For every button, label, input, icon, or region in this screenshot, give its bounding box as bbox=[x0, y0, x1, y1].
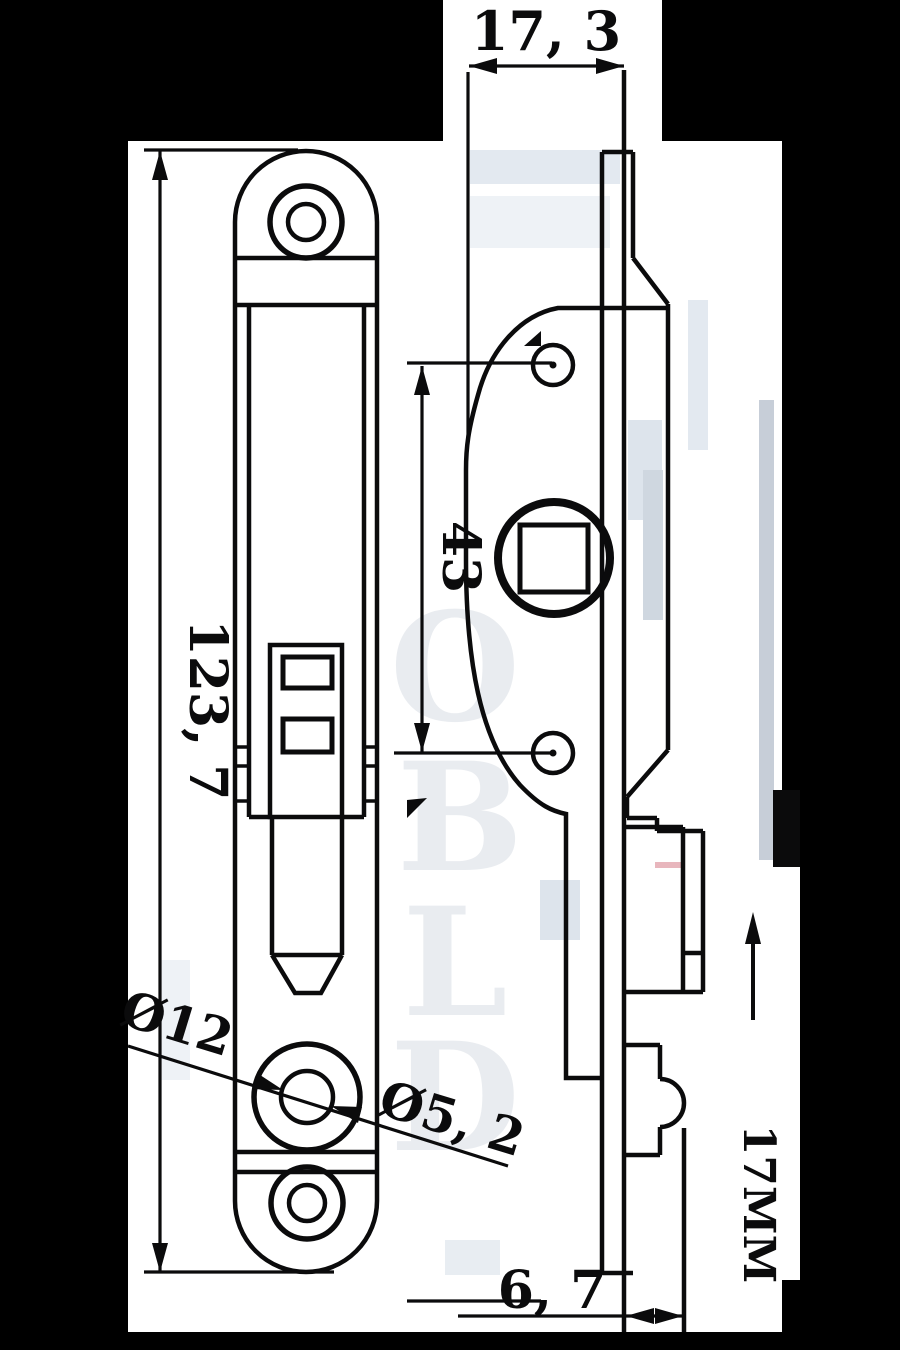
technical-drawing-svg: O B L D bbox=[0, 0, 900, 1350]
dim-stroke-travel-label: 17MM bbox=[733, 1125, 784, 1284]
dim-bottom-offset-label: 6, 7 bbox=[498, 1260, 607, 1321]
dim-hole-spacing-label: 43 bbox=[430, 521, 491, 593]
drawing-canvas: O B L D bbox=[0, 0, 900, 1350]
dim-plate-height-label: 123, 7 bbox=[177, 620, 238, 801]
dim-top-width-label: 17, 3 bbox=[471, 0, 621, 63]
